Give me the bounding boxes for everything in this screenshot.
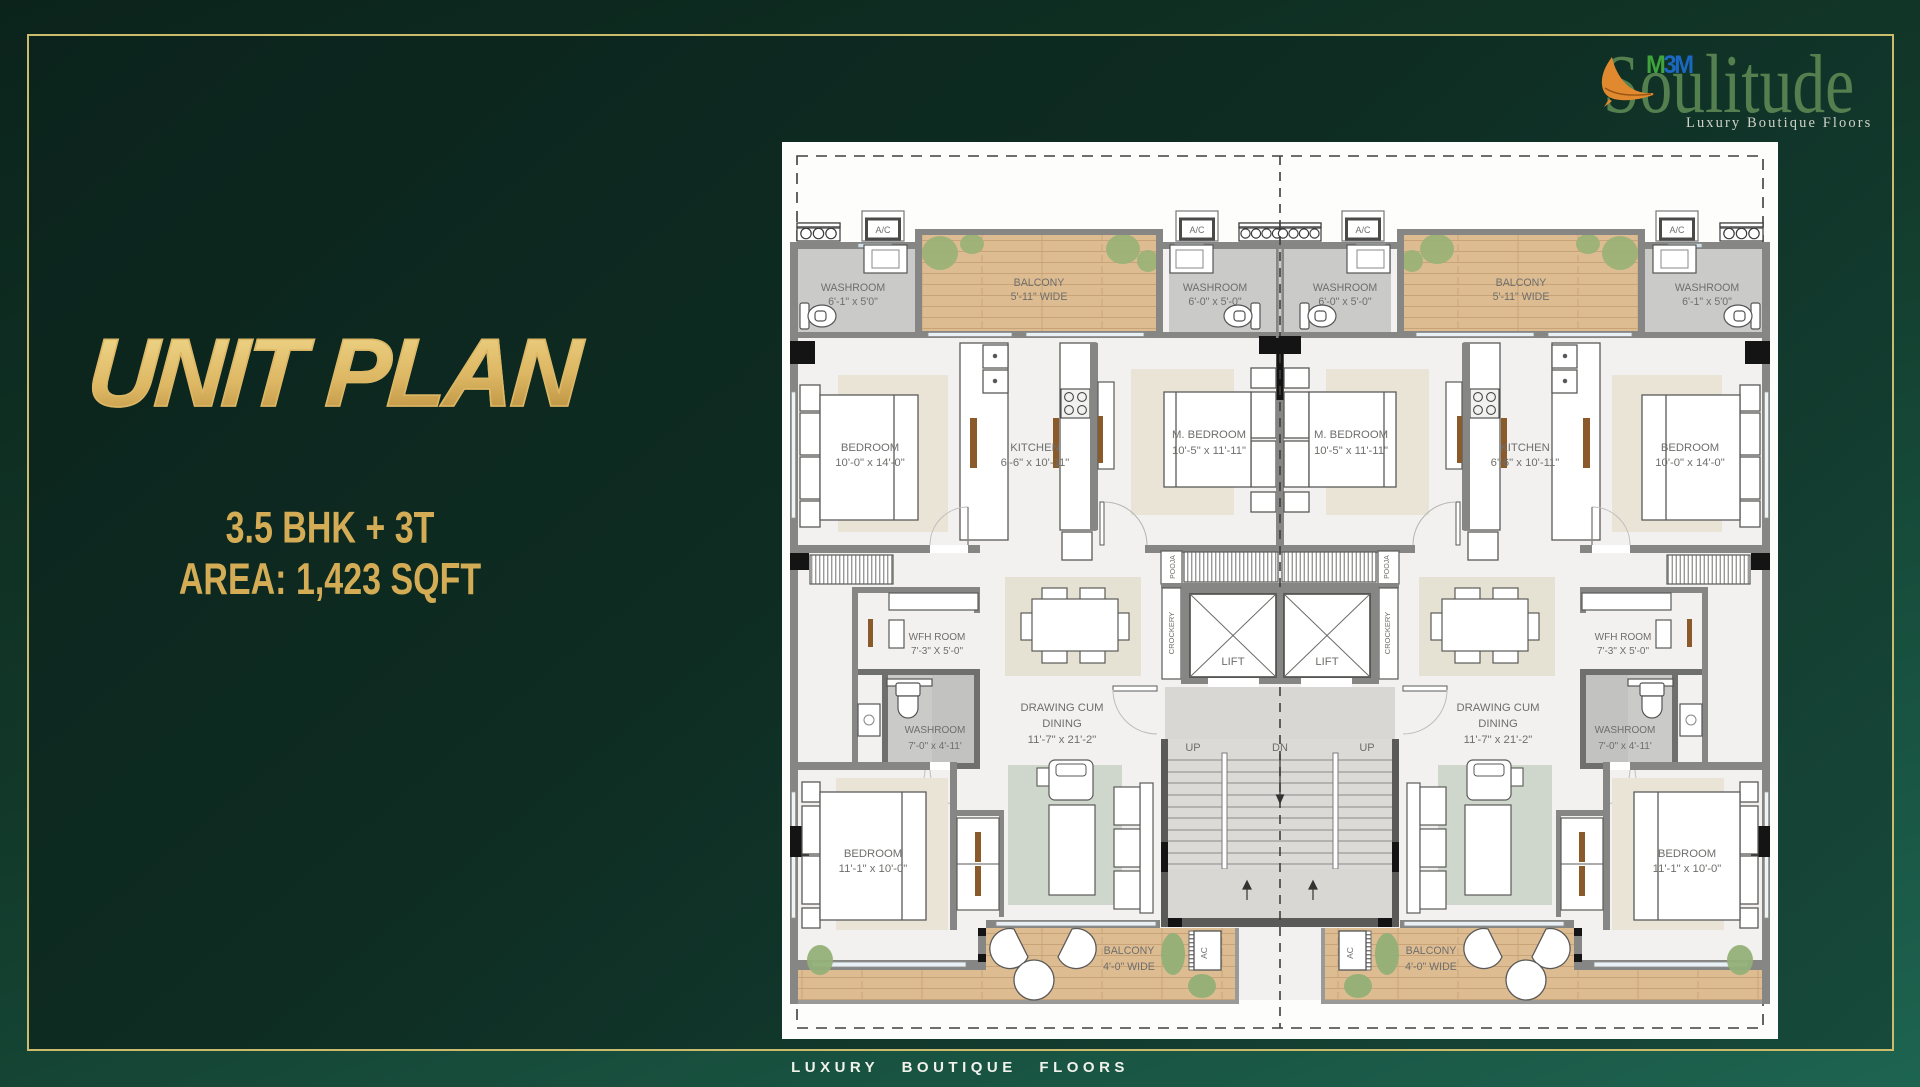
svg-text:CROCKERY: CROCKERY (1167, 612, 1176, 654)
svg-text:11'-1" x 10'-0": 11'-1" x 10'-0" (1653, 863, 1722, 875)
svg-text:WFH ROOM: WFH ROOM (1595, 632, 1652, 643)
svg-text:DRAWING CUM: DRAWING CUM (1456, 702, 1539, 714)
svg-text:11'-1" x 10'-0": 11'-1" x 10'-0" (839, 863, 908, 875)
svg-text:WASHROOM: WASHROOM (1183, 282, 1247, 294)
svg-text:DINING: DINING (1042, 718, 1082, 730)
svg-text:LIFT: LIFT (1221, 656, 1244, 668)
svg-text:A/C: A/C (1189, 225, 1205, 235)
svg-text:A/C: A/C (1355, 225, 1371, 235)
svg-text:POOJA: POOJA (1170, 555, 1177, 579)
svg-text:5'-11" WIDE: 5'-11" WIDE (1493, 291, 1550, 303)
svg-text:11'-7" x 21'-2": 11'-7" x 21'-2" (1028, 734, 1097, 746)
svg-text:CROCKERY: CROCKERY (1383, 612, 1392, 654)
svg-text:UP: UP (1359, 742, 1374, 754)
svg-text:M. BEDROOM: M. BEDROOM (1172, 429, 1246, 441)
svg-text:BALCONY: BALCONY (1104, 945, 1155, 957)
svg-text:LIFT: LIFT (1315, 656, 1338, 668)
svg-text:7'-0" x 4'-11': 7'-0" x 4'-11' (908, 741, 962, 752)
svg-text:10'-5" x 11'-11": 10'-5" x 11'-11" (1172, 445, 1246, 457)
svg-text:AC: AC (1199, 947, 1209, 959)
svg-text:DINING: DINING (1478, 718, 1518, 730)
svg-text:KITCHEN: KITCHEN (1010, 442, 1060, 454)
svg-text:6'-6" x 10'-11": 6'-6" x 10'-11" (1491, 457, 1560, 469)
svg-text:KITCHEN: KITCHEN (1500, 442, 1550, 454)
svg-text:M. BEDROOM: M. BEDROOM (1314, 429, 1388, 441)
svg-text:BEDROOM: BEDROOM (1658, 848, 1716, 860)
svg-text:WASHROOM: WASHROOM (1675, 282, 1739, 294)
svg-text:10'-0" x 14'-0": 10'-0" x 14'-0" (835, 457, 904, 469)
svg-text:BALCONY: BALCONY (1496, 277, 1547, 289)
svg-text:10'-0" x 14'-0": 10'-0" x 14'-0" (1655, 457, 1724, 469)
svg-text:6'-1" x 5'0": 6'-1" x 5'0" (1682, 296, 1732, 308)
svg-text:POOJA: POOJA (1384, 555, 1391, 579)
svg-text:BEDROOM: BEDROOM (1661, 442, 1719, 454)
svg-text:WASHROOM: WASHROOM (905, 725, 966, 736)
svg-text:WFH ROOM: WFH ROOM (909, 632, 966, 643)
svg-text:WASHROOM: WASHROOM (1595, 725, 1656, 736)
svg-text:WASHROOM: WASHROOM (821, 282, 885, 294)
svg-text:7'-3" X 5'-0": 7'-3" X 5'-0" (911, 646, 964, 657)
svg-text:6'-0" x 5'-0": 6'-0" x 5'-0" (1318, 296, 1372, 308)
svg-text:11'-7" x 21'-2": 11'-7" x 21'-2" (1464, 734, 1533, 746)
svg-text:6'-6" x 10'-11": 6'-6" x 10'-11" (1001, 457, 1070, 469)
svg-text:10'-5" x 11'-11": 10'-5" x 11'-11" (1314, 445, 1388, 457)
svg-text:6'-0" x 5'-0": 6'-0" x 5'-0" (1188, 296, 1242, 308)
svg-text:4'-0" WIDE: 4'-0" WIDE (1405, 961, 1457, 973)
svg-text:BEDROOM: BEDROOM (841, 442, 899, 454)
svg-text:BALCONY: BALCONY (1406, 945, 1457, 957)
svg-text:DRAWING CUM: DRAWING CUM (1020, 702, 1103, 714)
svg-text:UP: UP (1185, 742, 1200, 754)
svg-text:6'-1" x 5'0": 6'-1" x 5'0" (828, 296, 878, 308)
svg-text:4'-0" WIDE: 4'-0" WIDE (1103, 961, 1155, 973)
svg-text:DN: DN (1272, 742, 1288, 754)
svg-text:WASHROOM: WASHROOM (1313, 282, 1377, 294)
svg-text:A/C: A/C (875, 225, 891, 235)
svg-text:A/C: A/C (1669, 225, 1685, 235)
svg-text:BEDROOM: BEDROOM (844, 848, 902, 860)
svg-text:AC: AC (1345, 947, 1355, 959)
svg-text:5'-11" WIDE: 5'-11" WIDE (1011, 291, 1068, 303)
svg-text:7'-3" X 5'-0": 7'-3" X 5'-0" (1597, 646, 1650, 657)
svg-text:7'-0" x 4'-11': 7'-0" x 4'-11' (1598, 741, 1652, 752)
svg-text:BALCONY: BALCONY (1014, 277, 1065, 289)
